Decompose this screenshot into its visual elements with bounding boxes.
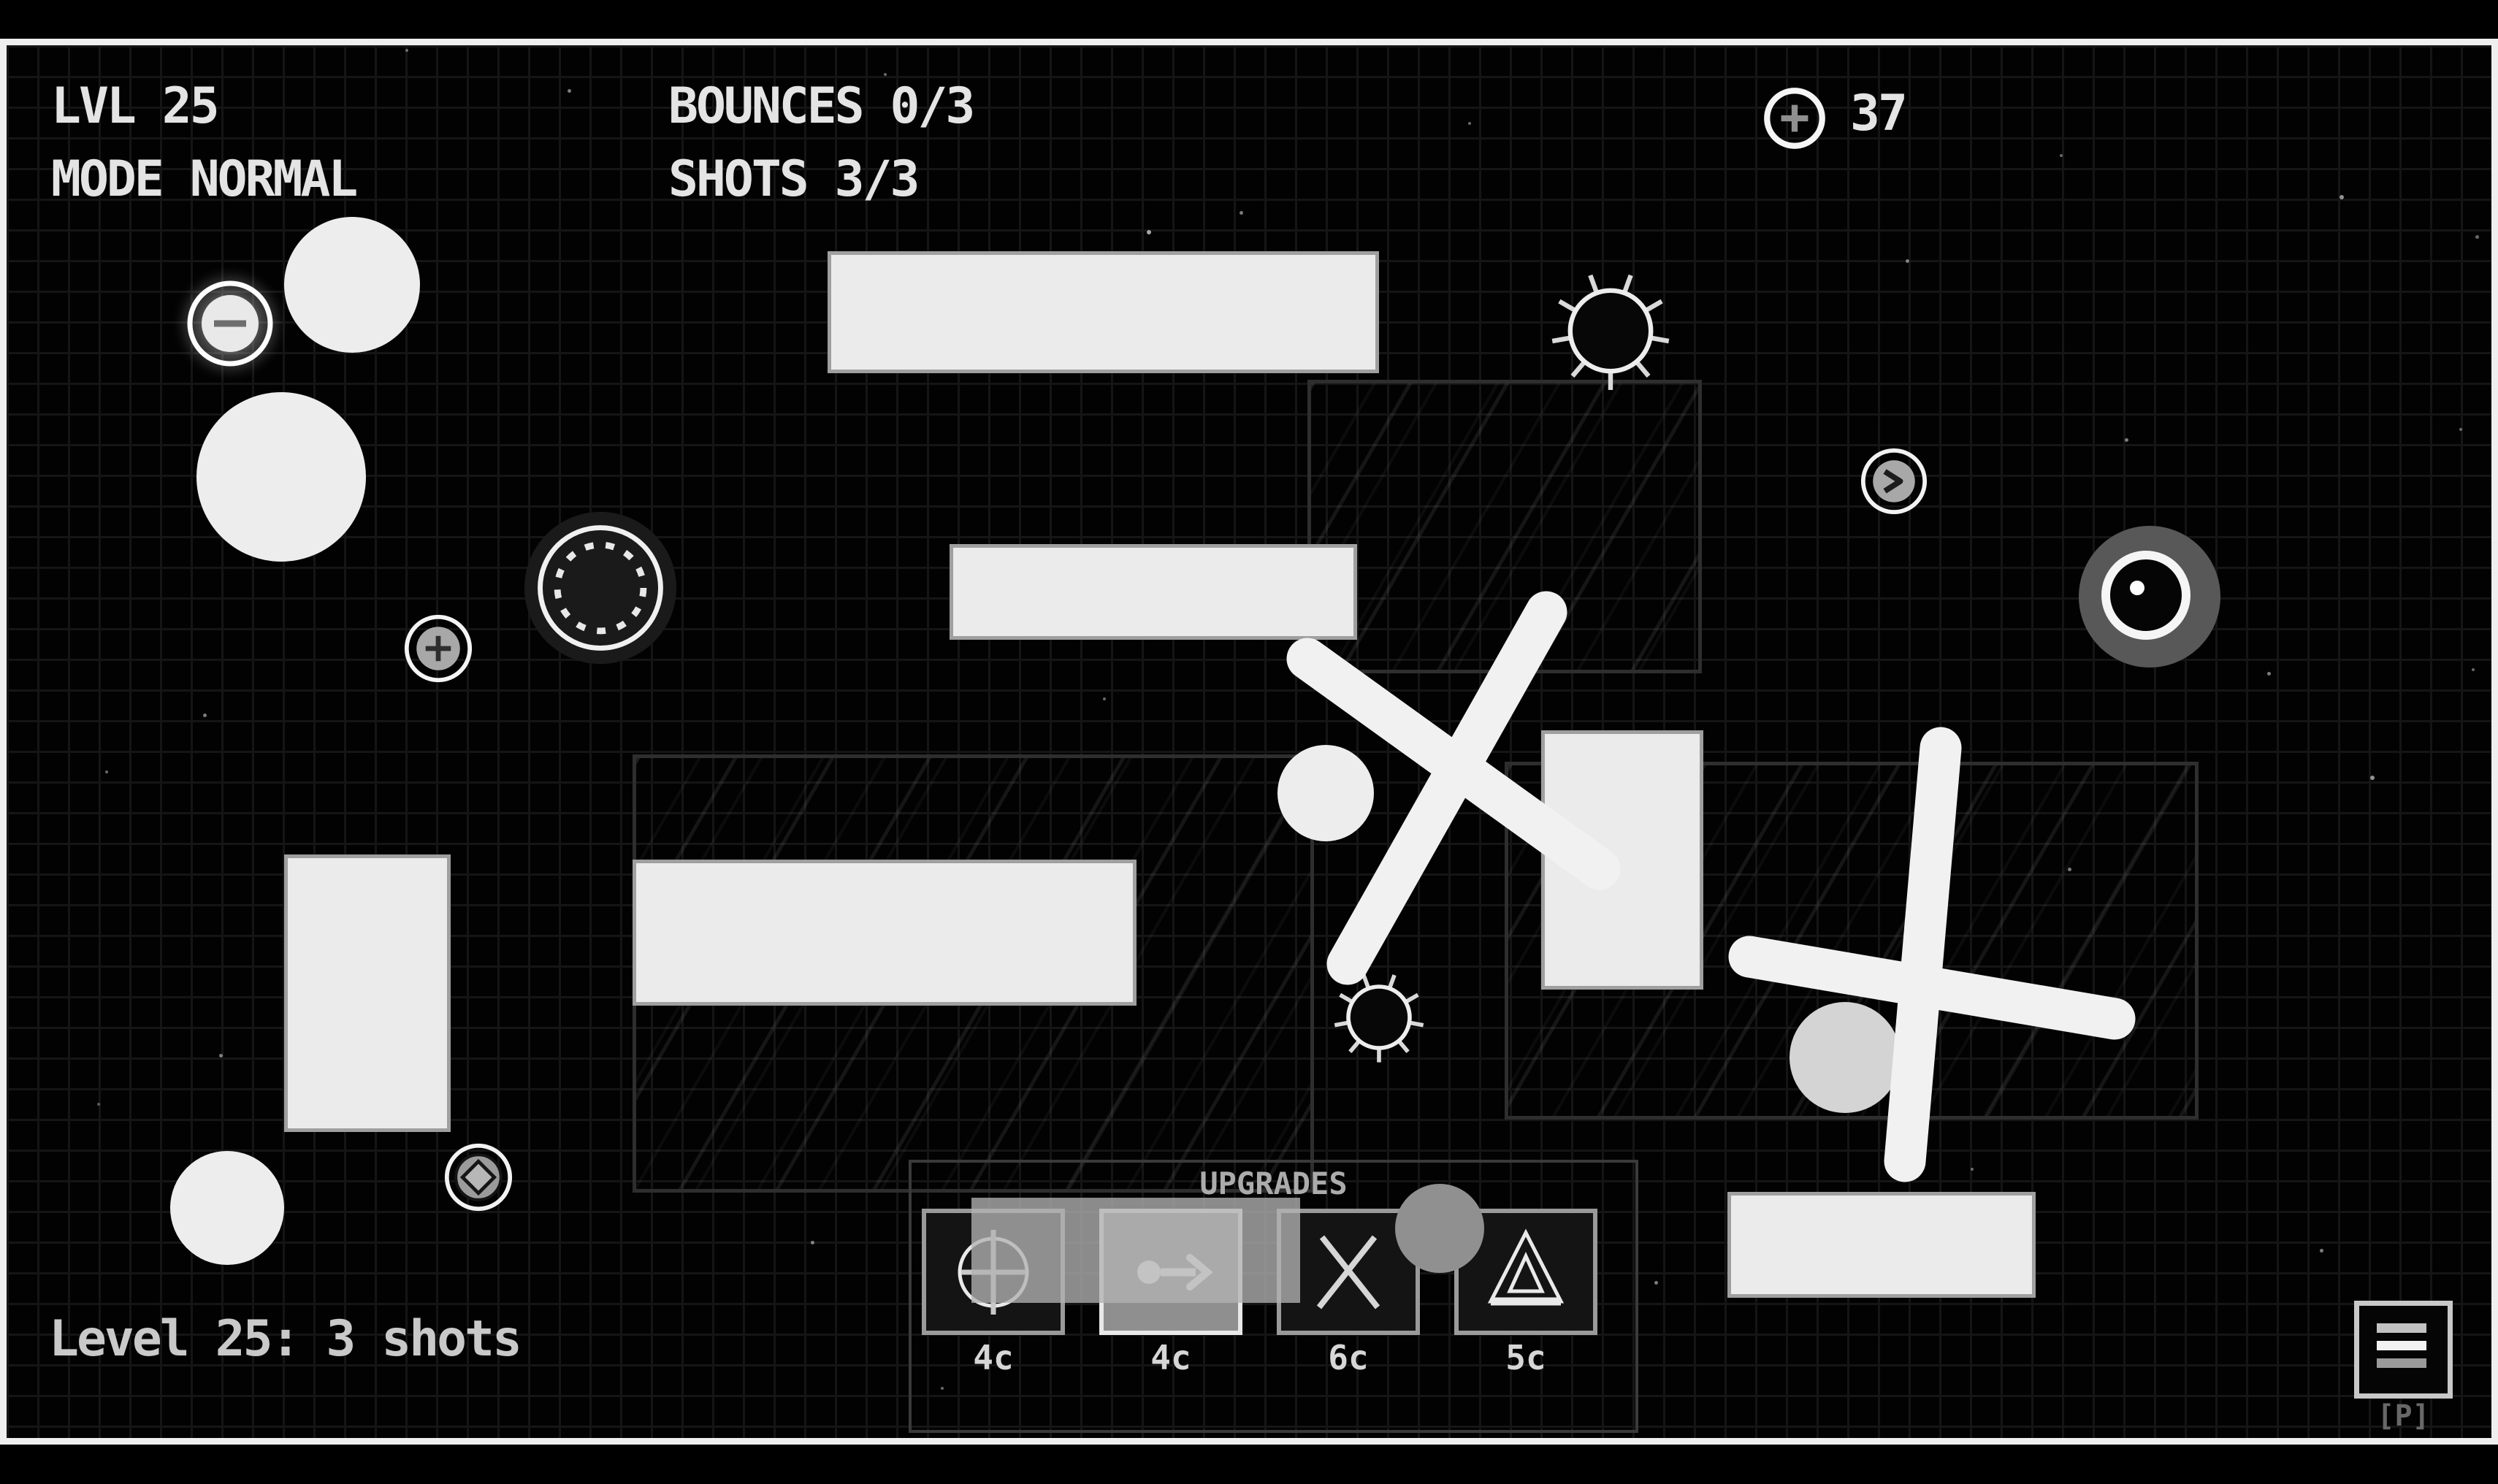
bounces-counter: BOUNCES 0/3 bbox=[668, 82, 973, 131]
gray-ball bbox=[1395, 1184, 1484, 1273]
upgrade-cost: 4c bbox=[922, 1338, 1065, 1377]
cross-icon bbox=[1297, 1221, 1399, 1323]
letterbox-top bbox=[0, 0, 2498, 39]
upgrade-cost: 6c bbox=[1277, 1338, 1420, 1377]
shots-counter: SHOTS 3/3 bbox=[668, 155, 917, 204]
status-text: Level 25: 3 shots bbox=[49, 1315, 520, 1364]
upgrade-cost: 4c bbox=[1099, 1338, 1242, 1377]
letterbox-bottom bbox=[0, 1445, 2498, 1484]
coin-icon bbox=[1761, 85, 1828, 152]
triangle-ramp-icon bbox=[1475, 1221, 1577, 1323]
upgrade-selection-highlight bbox=[971, 1198, 1300, 1303]
cross-stroke bbox=[1905, 748, 1941, 1161]
upgrade-cost: 5c bbox=[1454, 1338, 1597, 1377]
game-screen: { "hud": { "level_label": "LVL 25", "mod… bbox=[0, 0, 2498, 1484]
cross-stroke bbox=[1307, 659, 1600, 869]
upgrades-title: UPGRADES bbox=[909, 1166, 1638, 1201]
level-label: LVL 25 bbox=[51, 82, 218, 131]
coin-count: 37 bbox=[1850, 89, 1906, 139]
pause-shortcut-hint: [P] bbox=[2365, 1399, 2442, 1433]
mode-label: MODE NORMAL bbox=[51, 155, 356, 204]
menu-button[interactable] bbox=[2354, 1301, 2453, 1399]
